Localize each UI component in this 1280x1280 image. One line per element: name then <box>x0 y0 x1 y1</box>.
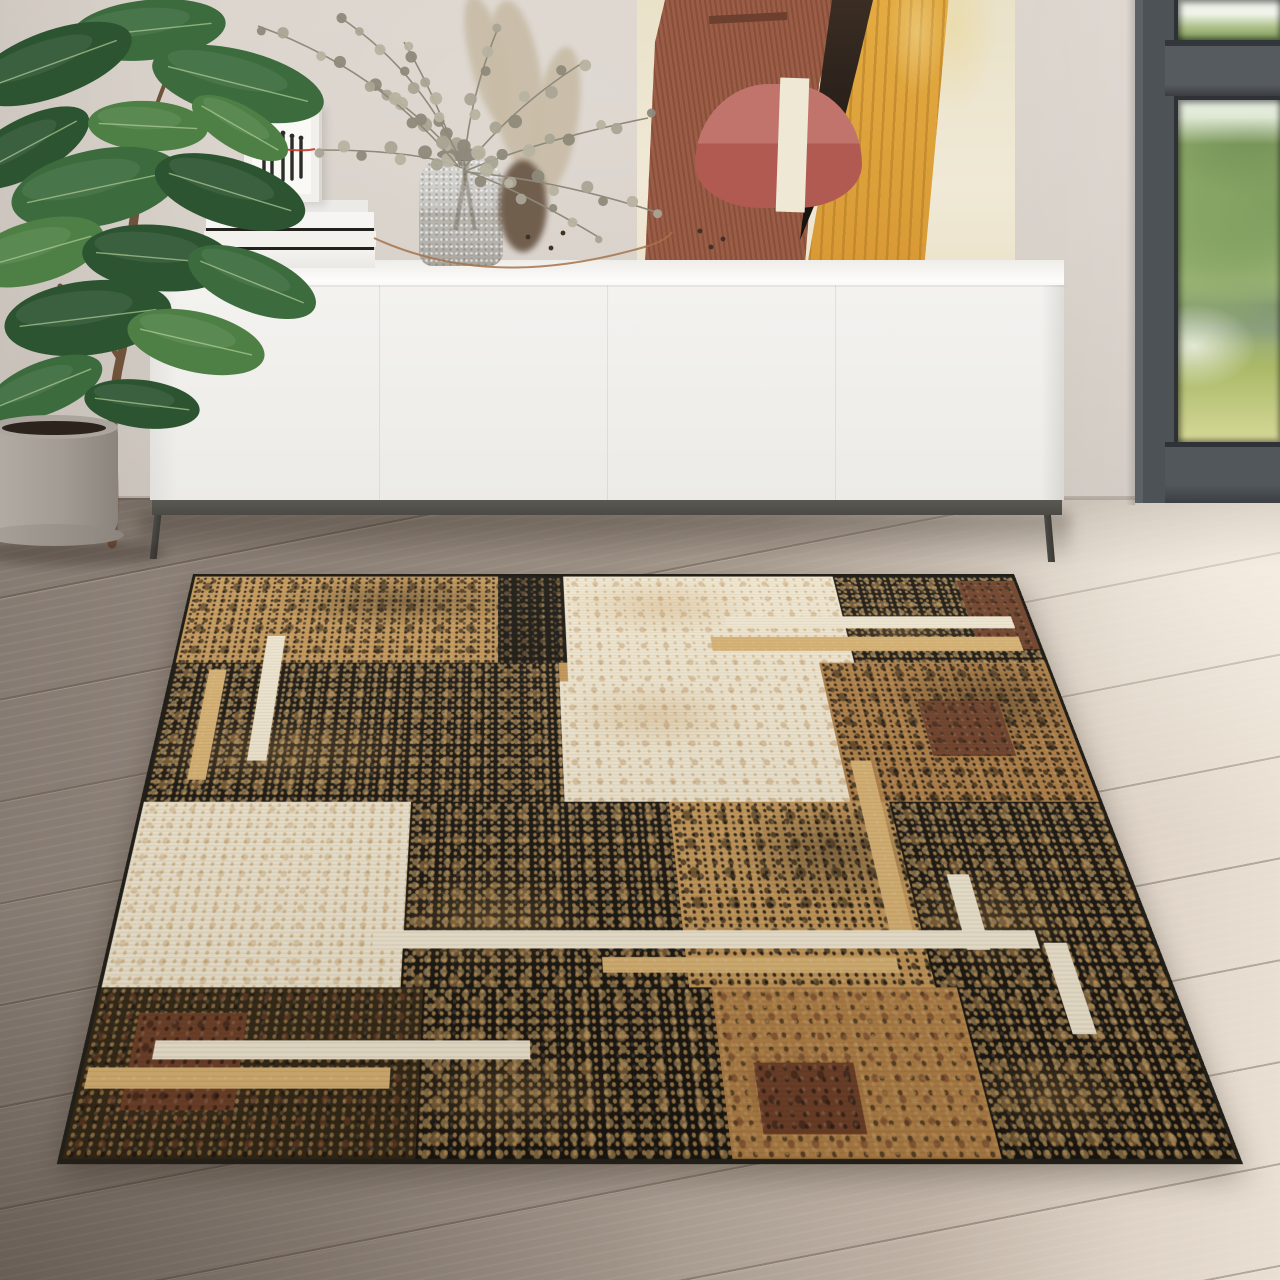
rug-accent-bar <box>725 616 1015 628</box>
rug-patch <box>102 801 412 987</box>
rug-patch <box>754 1063 868 1134</box>
glass-vase <box>419 152 503 266</box>
rug-patch <box>415 987 732 1159</box>
window-frame-face <box>1135 0 1143 503</box>
rug-patch <box>497 577 567 663</box>
window-pane-top <box>1174 0 1280 40</box>
garden-window <box>1135 0 1280 503</box>
rug-patch <box>119 1012 247 1110</box>
photo-stage <box>0 0 1280 1280</box>
rug-patch <box>176 577 498 663</box>
rug-patch <box>563 577 859 682</box>
rug-accent-bar <box>84 1067 391 1089</box>
sideboard-door-seam <box>835 285 837 500</box>
rug-accent-bar <box>602 957 900 973</box>
rug-accent-bar <box>152 1041 531 1060</box>
plant-pot <box>0 424 118 536</box>
sideboard-door-seam <box>379 285 381 500</box>
window-bottom-rail <box>1165 442 1280 503</box>
rug-accent-bar <box>372 930 1041 948</box>
window-pane-main <box>1174 96 1280 442</box>
sideboard-door-seam <box>607 285 609 500</box>
rug-accent-bar <box>711 637 1024 651</box>
plant-leaf <box>87 98 209 154</box>
window-transom-bar <box>1165 40 1280 96</box>
rug-patch <box>559 681 850 801</box>
wall-corner-shadow <box>1126 0 1135 505</box>
patchwork-rug <box>193 574 1052 1051</box>
abstract-painting <box>637 0 1015 264</box>
